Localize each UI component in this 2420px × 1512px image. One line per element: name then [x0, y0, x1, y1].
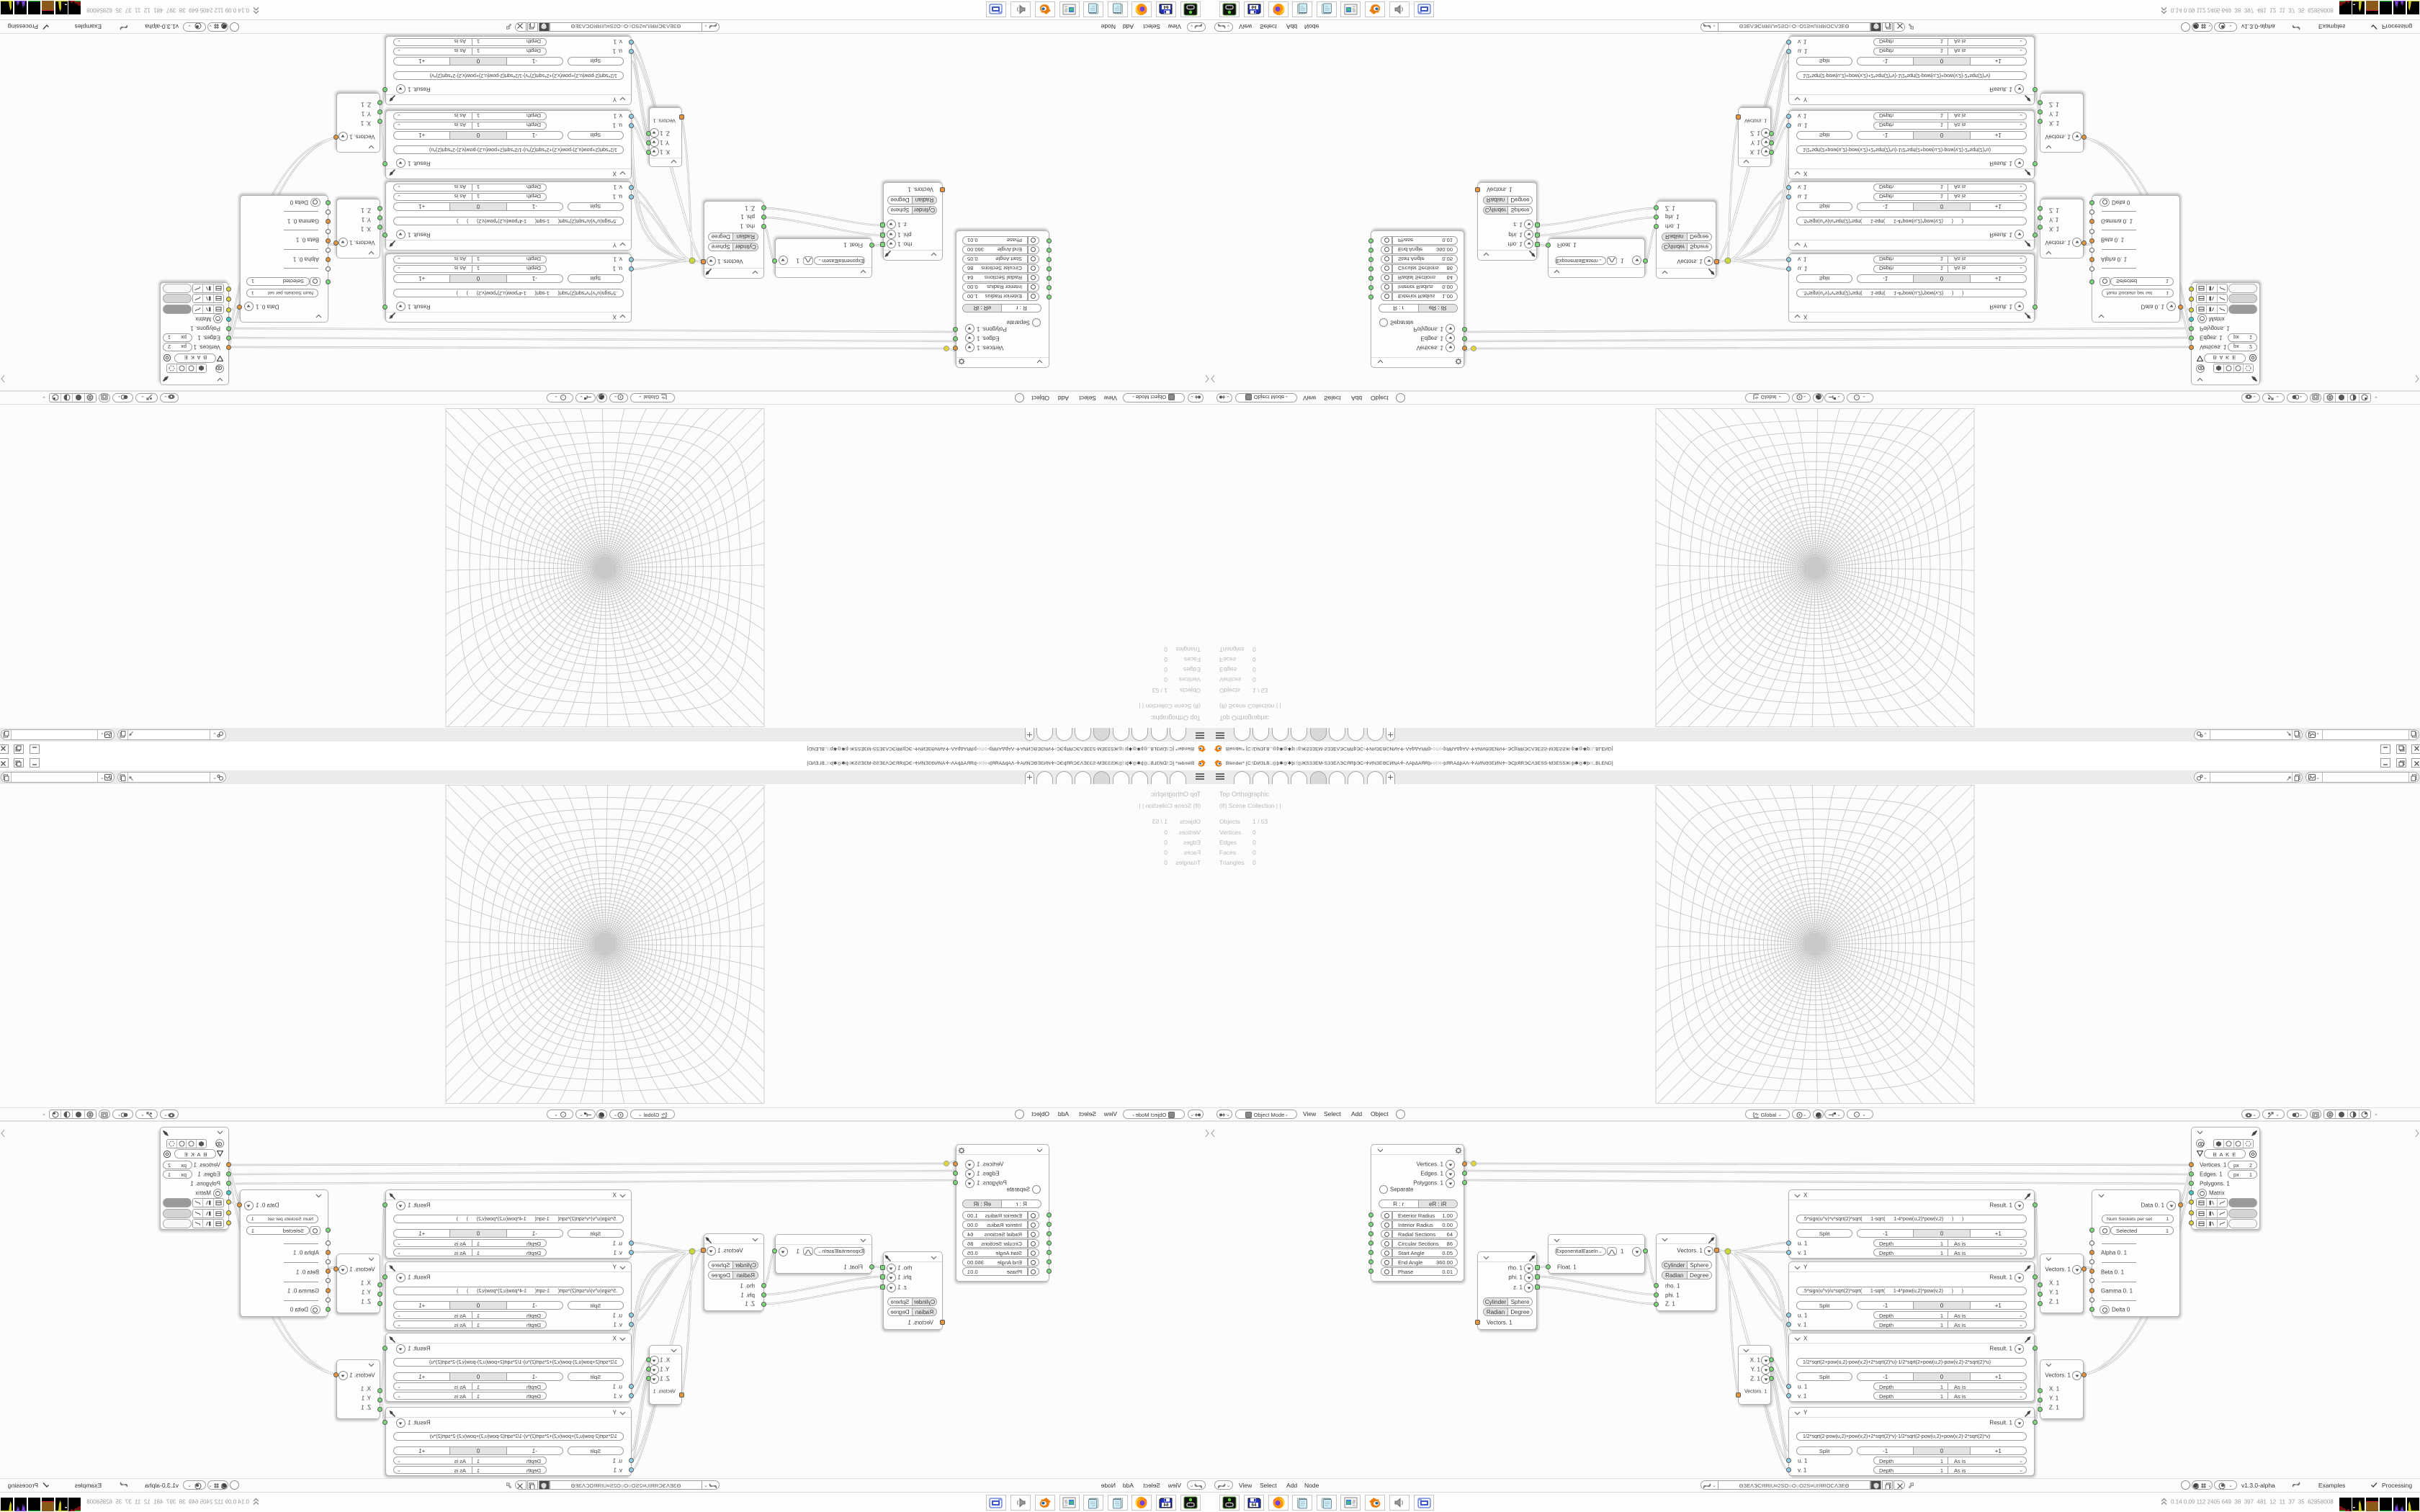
svg-text:64: 64: [1163, 1503, 1168, 1508]
svg-text:64: 64: [1252, 1503, 1257, 1508]
svg-text:64: 64: [1163, 4, 1168, 9]
svg-text:64: 64: [1252, 4, 1257, 9]
